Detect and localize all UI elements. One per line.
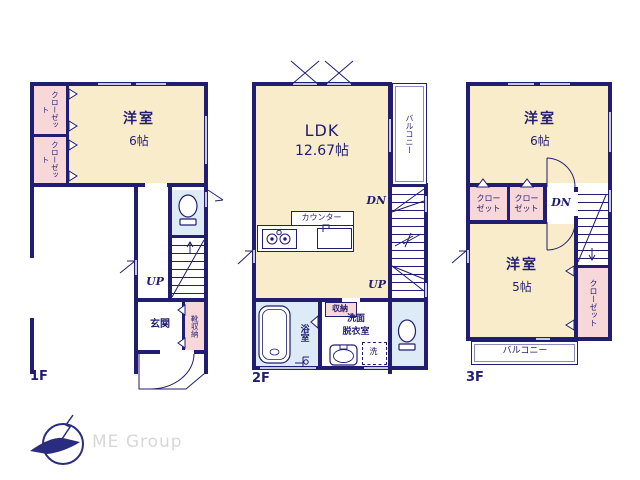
f3-closet-a-label: クローゼット [473,191,504,217]
f2-counter-label: カウンター [291,212,352,223]
wall-segment [182,302,185,350]
f1-entrance-label: 玄関 [138,318,182,332]
tick-mark [120,261,135,273]
f3-closet-c-label: クローゼット [585,272,601,333]
window-marker [260,367,316,369]
window-marker [135,260,137,275]
f1-shoe-storage-label: 靴収納 [187,308,202,344]
door-opening [145,183,167,187]
f2-bath-label: 浴室 [296,316,310,350]
f1-bedroom-label: 洋室 [104,112,174,128]
tick-mark [238,251,252,264]
window-marker [253,250,255,263]
f3-bedroom5-size: 5帖 [487,280,557,294]
f1-porch-outline [139,354,205,389]
f1-toilet-room [172,190,204,235]
wall-segment [172,235,204,238]
wall-segment [194,350,208,354]
compass-icon [30,415,83,464]
window-marker [425,283,427,297]
f3-floor-label: 3F [466,371,496,385]
f2-toilet-room [392,302,424,366]
f2-stairs [392,187,424,298]
window-marker [98,83,131,85]
f2-balcony-label: バルコニー [401,92,417,176]
tick-mark [208,190,223,201]
window-marker [467,250,469,263]
f3-bedroom5-label: 洋室 [487,258,557,274]
f3-dn-label: DN [549,197,573,209]
f2-ldk-label: LDK [287,122,357,140]
f2-ldk-room [256,86,388,298]
wall-segment [466,220,547,224]
wall-segment [543,187,547,220]
wall-segment [466,82,470,341]
window-marker [609,190,611,212]
window-marker [136,83,166,85]
window-marker [609,112,611,152]
window-marker [536,338,550,340]
f1-floor-label: 1F [30,370,60,384]
f3-balcony-label: バルコニー [490,345,560,358]
f2-washroom-label-1: 洗面 [326,314,386,326]
window-marker [327,83,351,85]
f1-stairs [172,238,204,298]
f3-bedroom6-label: 洋室 [505,112,575,128]
wall-segment [134,187,138,374]
window-marker [540,83,570,85]
wall-segment [466,82,612,86]
window-marker [389,119,391,152]
window-marker [205,192,207,207]
logo-text: ME Group [92,432,183,452]
f2-washer-label: 洗 [362,346,385,358]
f3-closet-b-label: クローゼット [512,191,541,217]
wall-segment [318,302,322,366]
f2-washroom-label-2: 脱衣室 [326,327,386,339]
f2-storage-label: 収納 [325,303,355,314]
floorplan-canvas: 洋室 6帖 クローゼット クローゼット UP 玄関 靴収納 1F LDK 12.… [0,0,640,480]
f3-bedroom6-size: 6帖 [505,134,575,148]
window-marker [508,83,534,85]
window-marker [293,83,317,85]
wall-segment [138,350,160,354]
f1-bedroom-size: 6帖 [104,134,174,148]
wall-segment [30,183,208,187]
f2-ldk-size: 12.67帖 [280,144,364,160]
wall-segment [30,82,34,258]
window-marker [205,116,207,164]
f2-up-label: UP [362,279,386,291]
f2-sink-box [317,228,352,249]
wall-segment [252,82,392,86]
f1-up-label: UP [142,276,168,288]
f1-entrance-door-arc [150,354,194,389]
wall-segment [66,86,69,183]
door-opening [574,192,578,216]
wall-segment [168,187,172,302]
window-marker [425,196,427,212]
f2-stove-box [262,229,297,249]
wall-segment [578,265,608,268]
window-marker [364,367,388,369]
tick-mark [452,251,466,263]
f1-closet-b-label: クローゼット [36,139,64,181]
f2-dn-label: DN [362,195,386,207]
f2-floor-label: 2F [252,372,282,386]
wall-segment [34,134,66,137]
f3-stairs [578,187,608,265]
wall-segment [138,298,204,302]
wall-segment [507,187,510,220]
wall-segment [392,298,428,302]
wall-segment [252,82,256,370]
f1-closet-a-label: クローゼット [36,88,64,132]
wall-segment [30,318,34,374]
